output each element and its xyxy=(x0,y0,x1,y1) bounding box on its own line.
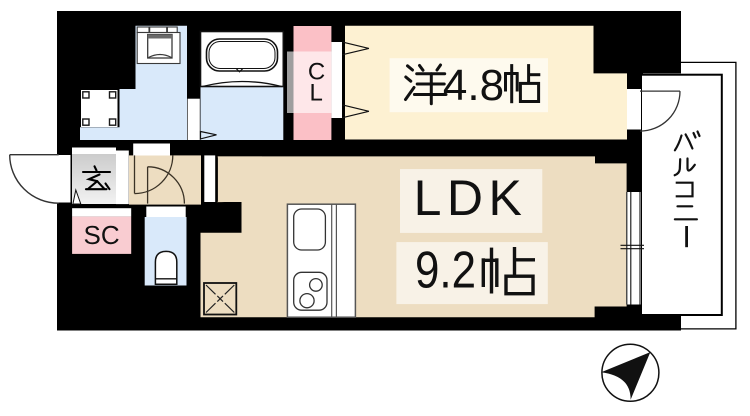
svg-text:LDK: LDK xyxy=(414,170,528,226)
svg-text:9.2: 9.2 xyxy=(415,240,476,298)
svg-text:SC: SC xyxy=(84,220,120,250)
svg-text:L: L xyxy=(310,80,323,107)
svg-text:4.8: 4.8 xyxy=(443,61,504,110)
